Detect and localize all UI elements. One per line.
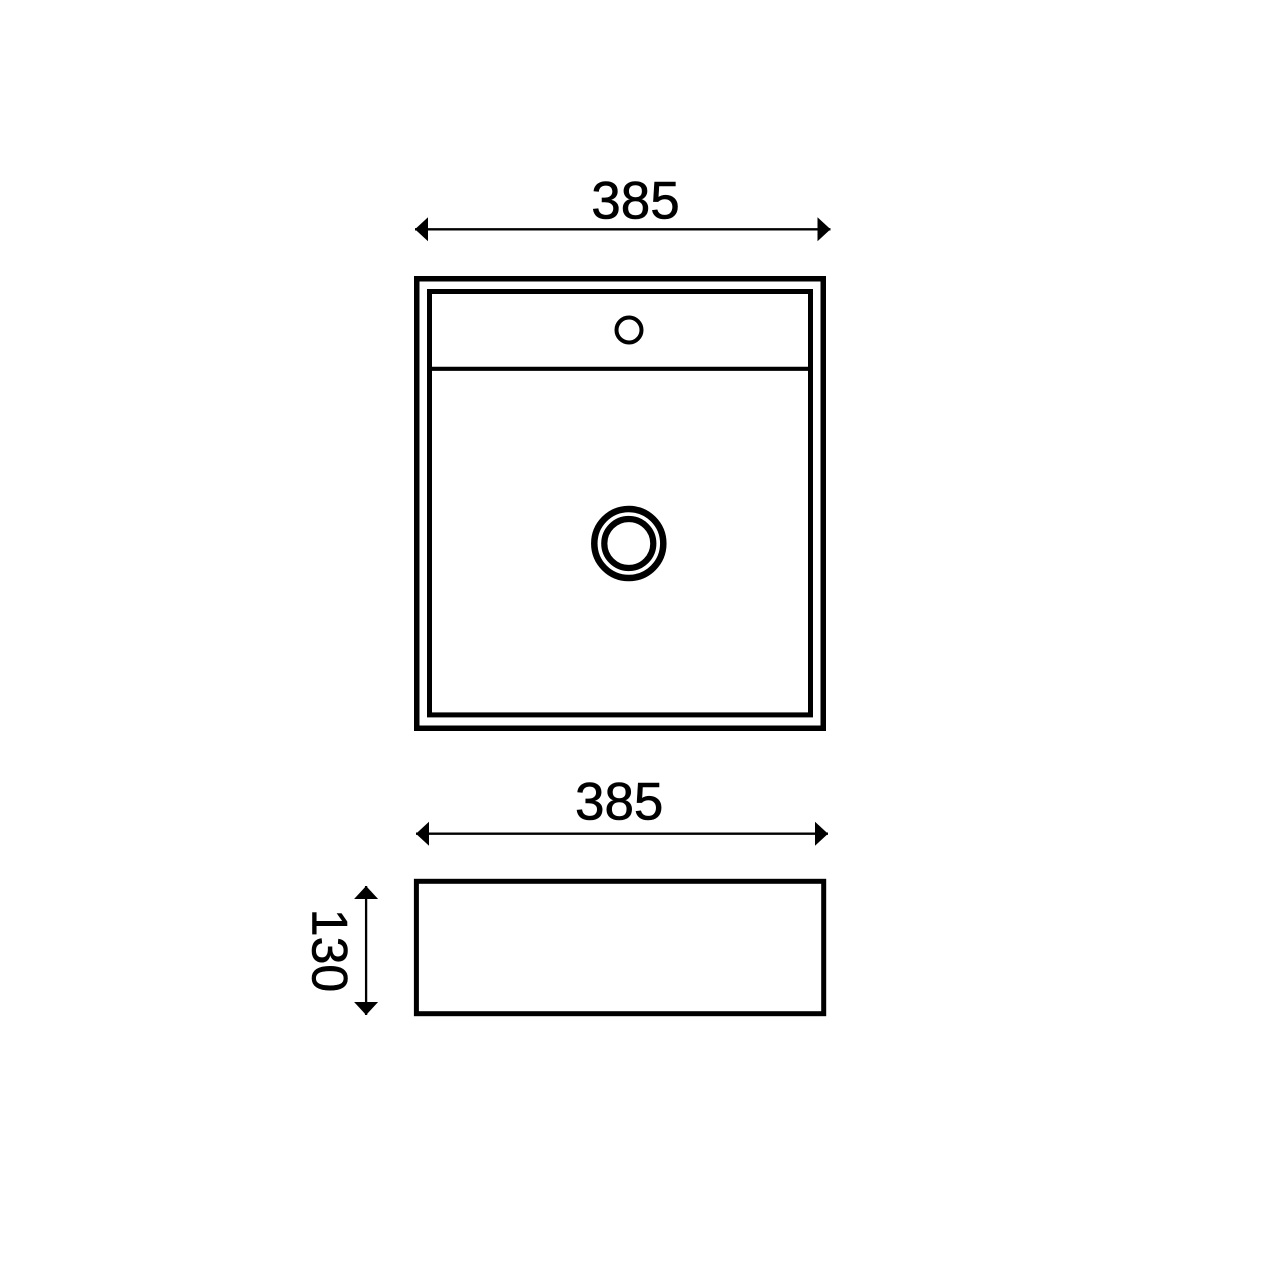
svg-text:130: 130 — [302, 909, 358, 992]
svg-text:385: 385 — [575, 773, 663, 832]
svg-text:385: 385 — [591, 172, 679, 231]
